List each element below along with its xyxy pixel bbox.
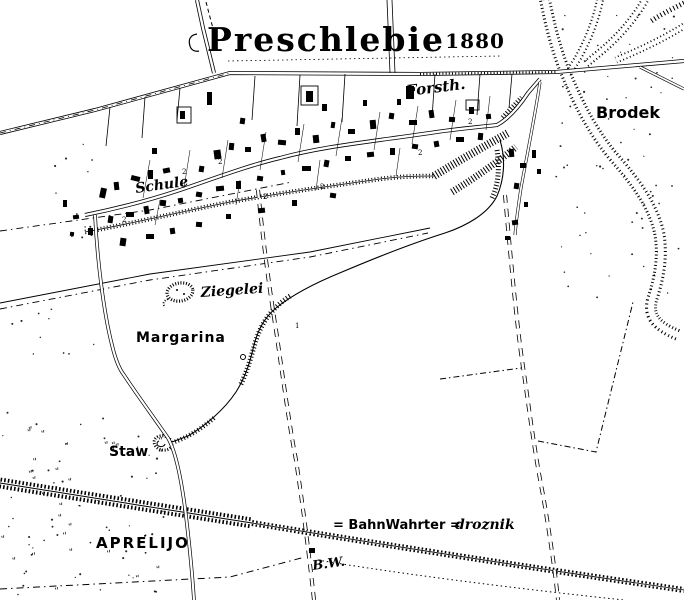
speckle-dot (102, 418, 104, 420)
speckle-dot (104, 437, 106, 439)
speckle-dot (59, 460, 61, 462)
speckle-dot (40, 337, 41, 338)
parcel-number: 2 (468, 118, 472, 126)
building (505, 236, 510, 240)
label-forsth: Forsth. (404, 75, 466, 100)
speckle-dot (32, 470, 34, 472)
building (73, 215, 79, 220)
speckle-dot (633, 129, 634, 130)
label-staw: Staw (109, 444, 148, 460)
speckle-dot (579, 235, 581, 237)
building (240, 118, 246, 125)
speckle-dot (673, 16, 675, 18)
parcel-numbers: 22222221 (122, 118, 472, 330)
parcel-number: 2 (320, 183, 324, 191)
footpath-dotted (318, 560, 624, 600)
parcel-number: 2 (418, 149, 422, 157)
speckle-dot (2, 435, 3, 436)
speckle-dot (583, 91, 585, 93)
speckle-dot (80, 424, 82, 426)
grass-tuft (2, 535, 4, 538)
legend-droznik: droznik (455, 517, 515, 533)
building (180, 111, 185, 119)
speckle-dot (28, 536, 30, 538)
parcel-lines (143, 96, 490, 225)
building (520, 163, 526, 168)
speckle-dot (120, 495, 122, 497)
speckle-dot (91, 159, 93, 161)
speckle-dot (100, 589, 101, 590)
building (367, 152, 374, 158)
speckle-dot (652, 195, 654, 197)
speckle-dot (636, 212, 638, 214)
label-margarina: Margarina (136, 330, 226, 346)
speckle-dot (656, 72, 658, 74)
speckle-dot (620, 52, 621, 53)
junction-hook (189, 34, 199, 51)
building (348, 129, 355, 134)
speckle-dot (25, 571, 27, 573)
speckle-dot (629, 44, 630, 45)
building (258, 208, 265, 214)
speckle-dot (597, 45, 599, 47)
building (306, 91, 313, 102)
grass-tuft (33, 476, 35, 479)
stream-hatch (492, 150, 498, 198)
speckle-dot (148, 455, 149, 456)
building (390, 148, 395, 155)
speckle-dot (627, 159, 629, 161)
building (532, 150, 536, 158)
speckle-dot (667, 292, 668, 293)
speckle-dot (87, 171, 88, 172)
village-buildings (63, 86, 541, 553)
speckle-dot (567, 286, 569, 288)
speckle-dot (137, 435, 139, 437)
brodek-branch-hatch (650, 3, 684, 22)
grass-tuft (60, 503, 62, 506)
speckle-dot (12, 518, 14, 520)
building (160, 200, 167, 207)
speckle-dot (28, 544, 29, 545)
building (514, 183, 520, 190)
speckle-dot (655, 185, 657, 187)
building (126, 212, 134, 217)
speckle-dot (671, 185, 673, 187)
building (397, 99, 401, 105)
boundary-line (538, 302, 633, 452)
speckle-dot (562, 28, 564, 30)
building (199, 166, 205, 173)
speckle-dot (84, 226, 85, 227)
speckle-dot (602, 168, 604, 170)
speckle-dot (566, 86, 567, 87)
speckle-dot (650, 191, 652, 193)
building (469, 107, 474, 114)
speckle-dot (155, 472, 157, 474)
speckle-dot (671, 78, 673, 80)
railway-centerline (0, 483, 252, 523)
speckle-dot (55, 192, 56, 193)
building (146, 234, 154, 239)
speckle-dot (22, 585, 24, 587)
speckle-dot (11, 323, 13, 325)
speckle-dot (122, 557, 124, 559)
map-canvas: 22222221 Preschlebie - 1880 Forsth. Brod… (0, 0, 684, 600)
building (178, 198, 184, 204)
building (428, 110, 434, 119)
speckle-dot (81, 236, 83, 238)
grass-tuft (63, 532, 65, 535)
building (295, 128, 300, 135)
dashed-road-center (258, 190, 314, 600)
speckle-dot (106, 526, 108, 528)
building (363, 100, 367, 106)
speckle-dot (564, 271, 566, 273)
building (196, 192, 203, 198)
building (389, 113, 395, 120)
speckle-dot (7, 412, 9, 414)
building (313, 135, 320, 144)
building (216, 186, 224, 192)
speckle-dot (606, 98, 608, 100)
speckle-dot (89, 226, 91, 228)
speckle-dot (62, 481, 64, 483)
speckle-dot (53, 482, 55, 484)
speckle-dot (625, 97, 626, 98)
speckle-dot (635, 78, 637, 80)
speckle-dot (76, 213, 78, 215)
speckle-dot (155, 591, 157, 593)
building (281, 170, 286, 176)
label-brodek: Brodek (596, 103, 660, 122)
speckle-dot (643, 266, 644, 267)
speckle-dot (658, 203, 660, 205)
building (108, 216, 114, 224)
building (245, 147, 251, 152)
label-schule: Schule (134, 174, 189, 197)
speckle-dot (32, 547, 33, 548)
legend-bahnwahrter: = BahnWahrter = (333, 518, 461, 533)
map-title: Preschlebie (207, 20, 445, 59)
speckle-dot (631, 221, 633, 223)
building (323, 160, 329, 168)
speckle-dot (561, 246, 562, 247)
speckle-dot (47, 469, 49, 471)
building (409, 120, 417, 125)
speckle-dot (31, 554, 33, 556)
speckle-dot (642, 227, 644, 229)
speckle-dot (128, 575, 129, 576)
speckle-dot (590, 253, 591, 254)
speckle-dot (109, 529, 111, 531)
building (434, 141, 440, 148)
building (196, 222, 202, 228)
speckle-dot (641, 218, 643, 220)
grass-tuft (70, 548, 72, 551)
speckle-dot (560, 145, 562, 147)
grass-tuft (105, 441, 107, 444)
speckle-dot (585, 232, 586, 233)
grass-tuft (29, 426, 31, 429)
speckle-dot (131, 476, 133, 478)
boundary-line (0, 557, 305, 589)
speckle-dot (51, 519, 53, 521)
building (537, 169, 541, 174)
building (345, 156, 351, 161)
speckle-dot (90, 542, 92, 544)
speckle-dot (643, 156, 644, 157)
speckle-dot (38, 313, 40, 315)
parcel-number: 2 (122, 216, 126, 224)
grass-tuft (29, 470, 31, 473)
building (229, 143, 235, 150)
grass-tuft (69, 523, 71, 526)
speckle-dot (620, 142, 622, 144)
building (370, 120, 377, 129)
parcel-number: 2 (263, 193, 267, 201)
building (152, 148, 157, 154)
speckle-dot (8, 526, 10, 528)
grass-tuft (42, 430, 44, 433)
speckle-dot (75, 577, 76, 578)
speckle-dot (631, 253, 633, 255)
building (143, 206, 149, 215)
speckle-dot (660, 92, 661, 93)
building (207, 92, 212, 105)
building (292, 200, 297, 206)
speckle-dot (146, 478, 147, 479)
building (509, 149, 515, 157)
building (302, 166, 311, 171)
speckle-dot (584, 71, 585, 72)
speckle-dot (24, 573, 26, 575)
building (278, 140, 286, 146)
roads (0, 0, 684, 600)
historical-map-preschlebie: 22222221 Preschlebie - 1880 Forsth. Brod… (0, 0, 684, 600)
speckle-dot (555, 176, 557, 178)
speckle-dot (563, 167, 565, 169)
map-labels: Preschlebie - 1880 Forsth. Brodek Schule… (96, 20, 660, 574)
grass-tuft (59, 514, 61, 517)
boundary-line (440, 368, 521, 379)
speckle-dot (564, 15, 565, 16)
dashed-road-east (505, 195, 558, 600)
speckle-dot (145, 552, 147, 554)
speckle-dot (68, 353, 70, 355)
speckle-dot (93, 344, 94, 345)
label-aprelijo: APRELIJO (96, 534, 190, 552)
map-year: - 1880 (428, 29, 505, 53)
building (330, 193, 337, 199)
building (486, 114, 491, 119)
building (449, 117, 455, 123)
building (456, 137, 464, 142)
speckle-dot (596, 165, 597, 166)
speckle-dot (51, 308, 53, 310)
label-bw: B.W. (310, 555, 345, 575)
speckle-dot (33, 353, 34, 354)
speckle-dot (576, 206, 578, 208)
grass-tuft (34, 458, 36, 461)
building (478, 133, 484, 140)
speckle-dot (584, 212, 585, 213)
speckle-dot (129, 525, 130, 526)
speckle-dot (52, 526, 54, 528)
speckle-dot (54, 165, 56, 167)
speckle-dot (156, 458, 158, 460)
speckle-dot (607, 76, 608, 77)
speckle-dot (562, 86, 564, 88)
building (99, 187, 107, 198)
grass-tuft (69, 478, 71, 481)
building (70, 232, 74, 236)
grass-tuft (28, 429, 30, 432)
speckle-dot (20, 320, 22, 322)
building (226, 214, 231, 219)
building (309, 548, 315, 553)
grass-tuft (32, 552, 34, 555)
label-ziegelei: Ziegelei (199, 281, 264, 301)
building (236, 181, 241, 189)
building (114, 182, 120, 190)
speckle-dot (596, 296, 598, 298)
grass-tuft (13, 557, 15, 560)
speckle-dot (569, 105, 571, 107)
grass-tuft (56, 467, 58, 470)
speckle-dot (649, 133, 651, 135)
speckle-dot (63, 352, 65, 354)
speckle-dot (650, 86, 652, 88)
building (524, 202, 528, 207)
speckle-dot (599, 165, 601, 167)
speckle-dot (163, 516, 165, 518)
building (322, 104, 327, 111)
building (170, 228, 176, 235)
speckle-dot (561, 122, 563, 124)
speckle-dot (566, 164, 568, 166)
building (257, 176, 264, 182)
speckle-dot (43, 540, 45, 542)
brodek-branch-floor (586, 0, 645, 64)
speckle-dot (79, 573, 81, 575)
grass-tuft (157, 566, 159, 569)
well-mark (241, 355, 246, 360)
ziegelei-pit (164, 281, 195, 307)
speckle-dot (608, 275, 609, 276)
building (163, 167, 171, 173)
speckle-dot (65, 158, 67, 160)
speckle-dot (83, 144, 84, 145)
speckle-dot (56, 534, 58, 536)
parcel-number: 2 (218, 158, 222, 166)
building (88, 228, 93, 235)
slope-hatch (452, 147, 516, 192)
speckle-dot (132, 577, 133, 578)
speckle-dot (35, 423, 37, 425)
speckle-dot (616, 15, 617, 16)
building (512, 220, 519, 226)
grass-tuft (55, 587, 57, 590)
speckle-dot (672, 57, 673, 58)
speckle-dot (678, 248, 680, 250)
speckle-dot (11, 497, 12, 498)
grass-tuft (136, 575, 138, 578)
speckle-dot (663, 28, 665, 30)
building (331, 122, 336, 128)
speckle-dot (48, 318, 49, 319)
building (119, 238, 126, 247)
speckle-dot (17, 594, 19, 596)
speckle-dot (79, 505, 81, 507)
parcel-number: 1 (295, 322, 299, 330)
building (63, 200, 67, 207)
